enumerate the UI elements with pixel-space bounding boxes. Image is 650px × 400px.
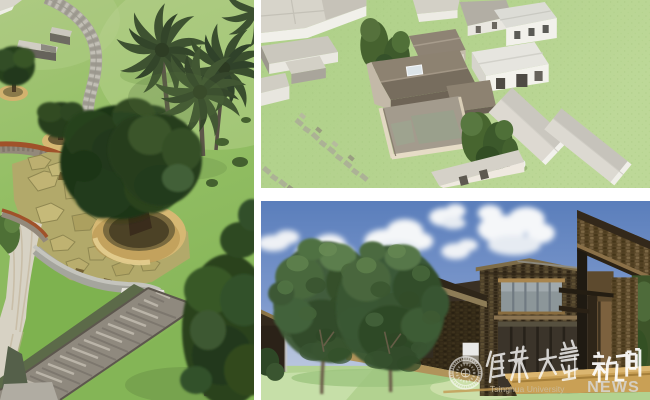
svg-text:Tsinghua University: Tsinghua University <box>490 384 565 394</box>
svg-text:NEWS: NEWS <box>587 378 640 396</box>
